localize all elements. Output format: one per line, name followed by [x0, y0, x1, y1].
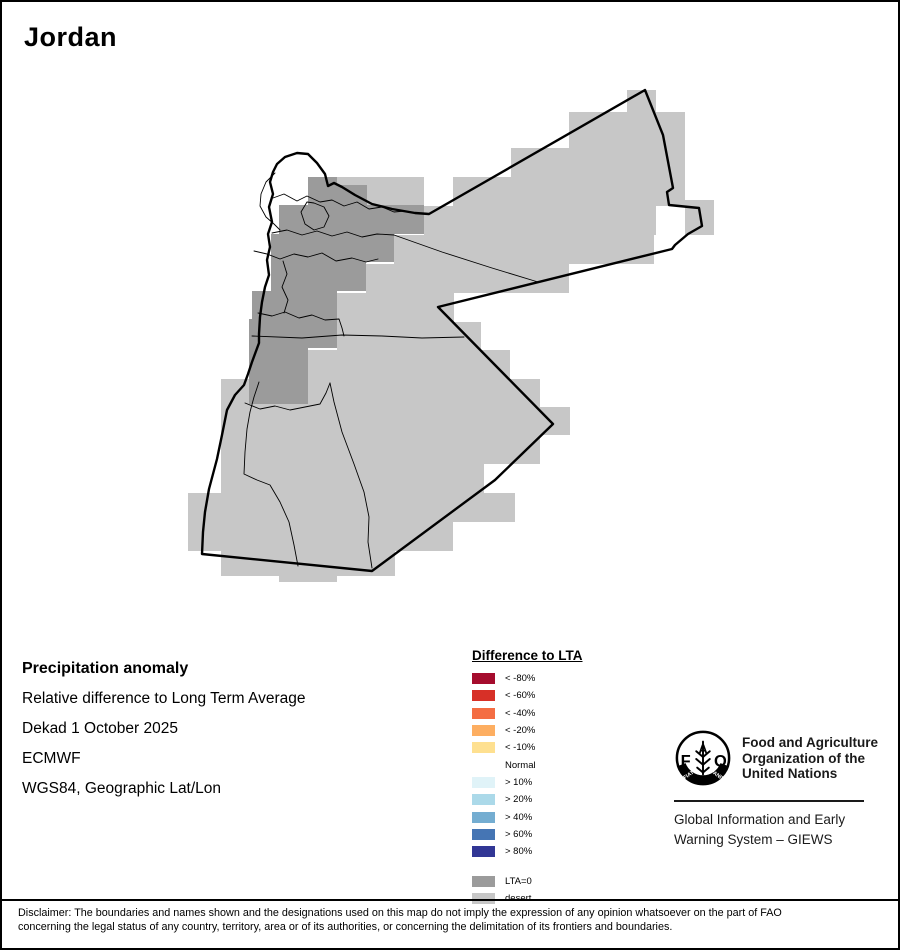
- fao-org-line: United Nations: [742, 766, 878, 782]
- legend-swatch: [472, 725, 495, 736]
- jordan-map: [2, 2, 900, 622]
- legend-label: > 60%: [495, 829, 532, 840]
- legend-label: > 40%: [495, 812, 532, 823]
- info-line-dekad: Dekad 1 October 2025: [22, 714, 306, 744]
- legend-swatch: [472, 777, 495, 788]
- legend-row: > 40%: [472, 808, 642, 825]
- info-block: Precipitation anomaly Relative differenc…: [22, 654, 306, 804]
- disclaimer: Disclaimer: The boundaries and names sho…: [18, 906, 890, 934]
- giews-line: Global Information and Early: [674, 810, 845, 830]
- legend-title: Difference to LTA: [472, 648, 642, 663]
- legend-row: LTA=0: [472, 873, 642, 890]
- fao-logo: F O A FIAT PANIS: [674, 729, 732, 787]
- legend: Difference to LTA < -80%< -60%< -40%< -2…: [472, 648, 642, 906]
- disclaimer-line: Disclaimer: The boundaries and names sho…: [18, 906, 890, 920]
- legend-swatch: [472, 742, 495, 753]
- legend-swatch: [472, 708, 495, 719]
- info-line-subtitle: Relative difference to Long Term Average: [22, 684, 306, 714]
- legend-label: < -20%: [495, 725, 535, 736]
- legend-row: < -40%: [472, 705, 642, 722]
- fao-org-line: Food and Agriculture: [742, 735, 878, 751]
- giews-line: Warning System – GIEWS: [674, 830, 845, 850]
- fao-logo-letter-f: F: [681, 753, 691, 771]
- legend-entries: < -80%< -60%< -40%< -20%< -10%Normal> 10…: [472, 670, 642, 860]
- info-line-source: ECMWF: [22, 744, 306, 774]
- legend-swatch: [472, 673, 495, 684]
- legend-row: > 10%: [472, 774, 642, 791]
- disclaimer-divider: [2, 899, 898, 901]
- legend-label: > 10%: [495, 777, 532, 788]
- info-heading: Precipitation anomaly: [22, 654, 306, 684]
- fao-logo-letter-o: O: [714, 753, 727, 771]
- info-line-projection: WGS84, Geographic Lat/Lon: [22, 774, 306, 804]
- legend-label: > 20%: [495, 794, 532, 805]
- fao-org-name: Food and Agriculture Organization of the…: [742, 735, 878, 782]
- legend-row: < -20%: [472, 722, 642, 739]
- legend-label: < -60%: [495, 690, 535, 701]
- legend-label: LTA=0: [495, 876, 532, 887]
- legend-row: < -60%: [472, 687, 642, 704]
- legend-label: Normal: [495, 760, 536, 771]
- legend-row: < -80%: [472, 670, 642, 687]
- legend-label: < -40%: [495, 708, 535, 719]
- legend-swatch: [472, 876, 495, 887]
- legend-row: Normal: [472, 756, 642, 773]
- legend-row: > 20%: [472, 791, 642, 808]
- legend-swatch: [472, 846, 495, 857]
- legend-label: < -10%: [495, 742, 535, 753]
- fao-divider: [674, 800, 864, 802]
- legend-special-entries: LTA=0desert: [472, 873, 642, 906]
- legend-row: < -10%: [472, 739, 642, 756]
- disclaimer-line: concerning the legal status of any count…: [18, 920, 890, 934]
- legend-swatch: [472, 812, 495, 823]
- legend-row: > 80%: [472, 843, 642, 860]
- legend-label: < -80%: [495, 673, 535, 684]
- fao-org-line: Organization of the: [742, 751, 878, 767]
- legend-label: > 80%: [495, 846, 532, 857]
- map-page: Jordan: [0, 0, 900, 950]
- legend-swatch: [472, 829, 495, 840]
- legend-swatch: [472, 794, 495, 805]
- legend-row: > 60%: [472, 826, 642, 843]
- giews-label: Global Information and Early Warning Sys…: [674, 810, 845, 850]
- legend-swatch: [472, 690, 495, 701]
